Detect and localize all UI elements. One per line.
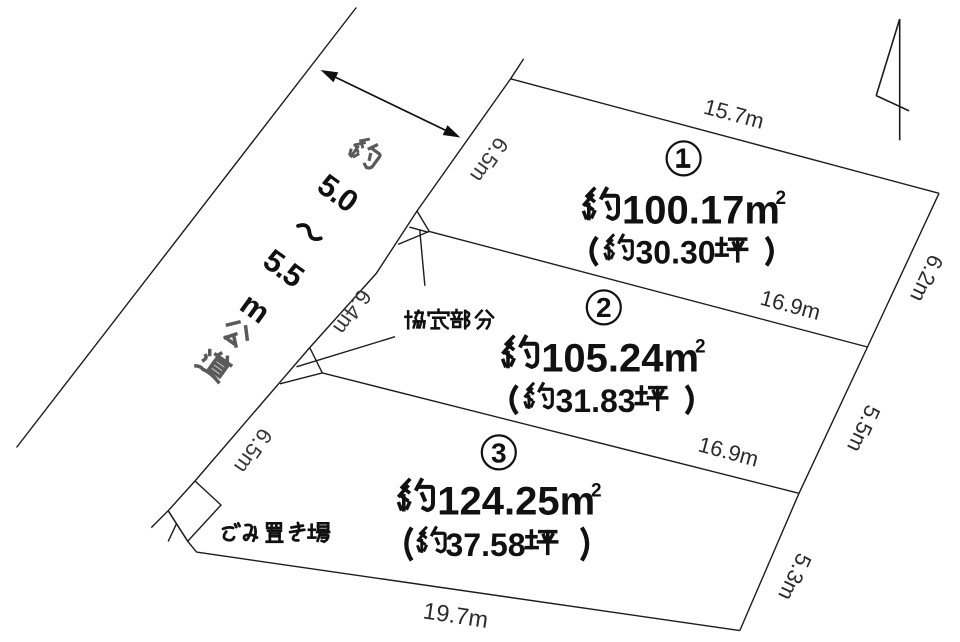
svg-text:1: 1: [675, 143, 691, 174]
svg-text:124.25m: 124.25m: [437, 480, 595, 524]
svg-text:100.17m: 100.17m: [622, 188, 780, 232]
svg-text:2: 2: [695, 337, 706, 358]
svg-text:37.58: 37.58: [446, 527, 526, 563]
svg-text:30.30: 30.30: [636, 235, 716, 271]
svg-text:2: 2: [596, 292, 612, 323]
svg-text:105.24m: 105.24m: [541, 336, 699, 380]
svg-text:2: 2: [591, 481, 602, 502]
svg-text:2: 2: [776, 188, 787, 209]
svg-text:3: 3: [491, 437, 507, 468]
svg-text:31.83: 31.83: [556, 383, 636, 419]
